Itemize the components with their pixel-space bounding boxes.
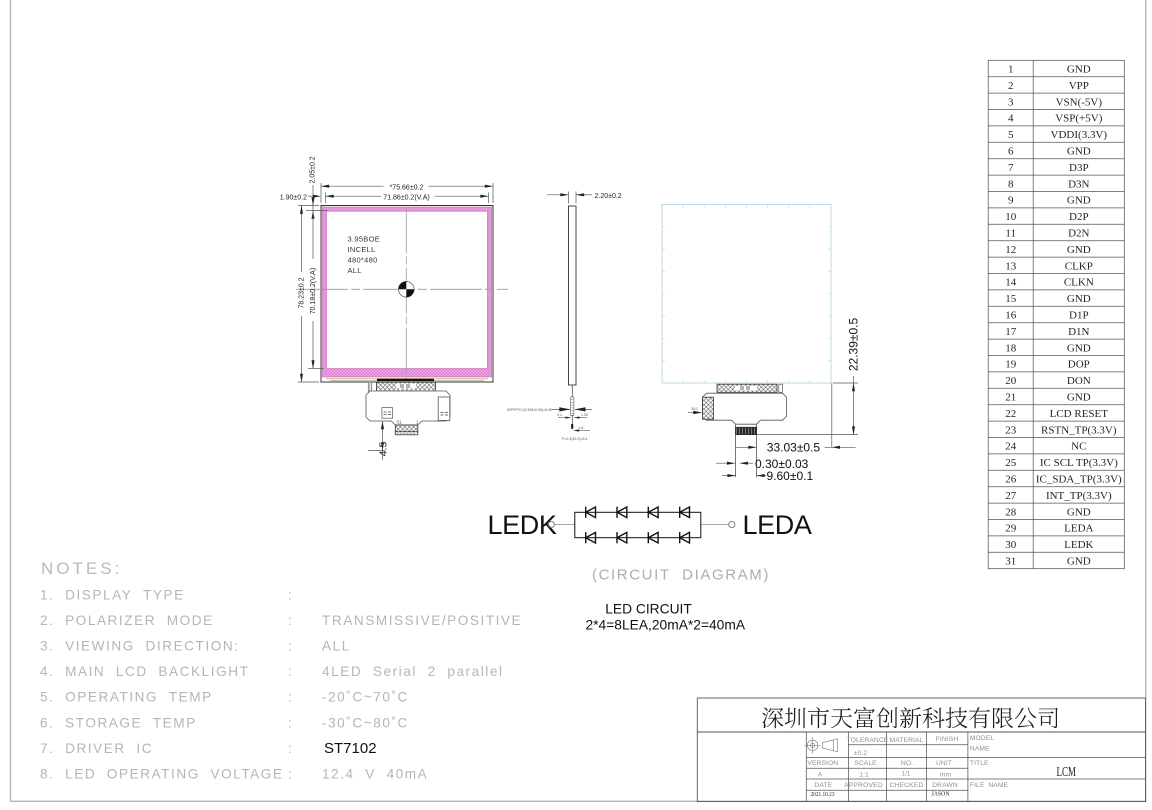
svg-text:1/1: 1/1: [902, 772, 911, 778]
svg-text:D3P: D3P: [1069, 162, 1089, 174]
svg-text:25: 25: [1005, 457, 1017, 469]
svg-text:TRANSMISSIVE/POSITIVE: TRANSMISSIVE/POSITIVE: [322, 613, 522, 628]
svg-text:CLKP: CLKP: [1065, 260, 1093, 272]
svg-text:4.5: 4.5: [378, 442, 390, 457]
svg-text::: :: [288, 613, 293, 628]
svg-text:JASON: JASON: [931, 792, 950, 798]
svg-text:29: 29: [1005, 523, 1017, 535]
svg-text:9.60±0.1: 9.60±0.1: [767, 469, 814, 483]
svg-text:9: 9: [1008, 195, 1014, 207]
svg-text:IC_SDA_TP(3.3V): IC_SDA_TP(3.3V): [1036, 474, 1122, 486]
svg-text:5: 5: [1008, 129, 1014, 141]
svg-text:2.05±0.2: 2.05±0.2: [310, 156, 317, 183]
svg-text:18: 18: [1005, 342, 1017, 354]
svg-text:GND: GND: [1067, 64, 1091, 76]
svg-text:D3N: D3N: [1068, 178, 1089, 190]
svg-text:20: 20: [1005, 375, 1017, 387]
svg-text:2: 2: [1008, 80, 1014, 92]
svg-text:3.95BOE: 3.95BOE: [348, 235, 381, 244]
svg-text:1: 1: [1008, 64, 1014, 76]
svg-text:30:1: 30:1: [691, 407, 698, 411]
svg-text:CLKN: CLKN: [1064, 277, 1094, 289]
svg-text:4LED Serial 2 parallel: 4LED Serial 2 parallel: [322, 664, 504, 679]
svg-text:14: 14: [1005, 277, 1017, 289]
svg-text::: :: [288, 741, 293, 756]
svg-text:NAME: NAME: [970, 746, 990, 753]
svg-text:12.4 V 40mA: 12.4 V 40mA: [322, 767, 428, 782]
svg-text:70.18±0.2(V.A): 70.18±0.2(V.A): [310, 268, 317, 314]
svg-text:FILE NAME: FILE NAME: [970, 782, 1009, 789]
svg-text::: :: [288, 664, 293, 679]
svg-text:GND: GND: [1067, 293, 1091, 305]
svg-text:19: 19: [1005, 359, 1017, 371]
svg-text:IC SCL TP(3.3V): IC SCL TP(3.3V): [1040, 457, 1118, 469]
svg-text::: :: [288, 587, 293, 602]
svg-text:15: 15: [1005, 293, 1017, 305]
svg-text:GND: GND: [1067, 392, 1091, 404]
svg-text:78.23±0.2: 78.23±0.2: [298, 277, 305, 308]
svg-text:2. POLARIZER MODE: 2. POLARIZER MODE: [40, 613, 214, 628]
svg-text:VERSION: VERSION: [807, 760, 838, 767]
svg-text:4. MAIN LCD BACKLIGHT: 4. MAIN LCD BACKLIGHT: [40, 664, 249, 679]
svg-text::: :: [288, 639, 293, 654]
svg-text:LEDA: LEDA: [743, 510, 812, 540]
svg-text:LEDK: LEDK: [1064, 539, 1093, 551]
svg-text:12: 12: [1005, 244, 1016, 256]
svg-text:VSP(+5V): VSP(+5V): [1055, 113, 1102, 125]
svg-text:NO.: NO.: [901, 760, 913, 767]
svg-text:0.1: 0.1: [557, 413, 562, 417]
svg-text:17: 17: [1005, 326, 1017, 338]
svg-text:DRAWN: DRAWN: [932, 782, 958, 789]
svg-text:-30˚C~80˚C: -30˚C~80˚C: [322, 715, 409, 730]
svg-text:RSTN_TP(3.3V): RSTN_TP(3.3V): [1041, 424, 1117, 436]
svg-text:23: 23: [1005, 424, 1017, 436]
svg-text:GND: GND: [1067, 506, 1091, 518]
svg-text:26: 26: [1005, 474, 1017, 486]
svg-text:P=0.3(30-2)=8.4: P=0.3(30-2)=8.4: [562, 437, 588, 441]
svg-text:VSN(-5V): VSN(-5V): [1056, 96, 1103, 108]
svg-text:30: 30: [1005, 539, 1017, 551]
svg-text:FINISH: FINISH: [936, 736, 959, 743]
svg-text:VPP: VPP: [1069, 80, 1089, 92]
svg-text:DON: DON: [1067, 375, 1091, 387]
svg-text:INCELL: INCELL: [348, 245, 376, 254]
svg-text:GND: GND: [1067, 146, 1091, 158]
svg-text:MODEL: MODEL: [970, 735, 994, 742]
svg-text:27: 27: [1005, 490, 1017, 502]
svg-text:1.05: 1.05: [581, 413, 588, 417]
svg-text:LED CIRCUIT: LED CIRCUIT: [605, 602, 692, 617]
svg-text:6. STORAGE TEMP: 6. STORAGE TEMP: [40, 715, 197, 730]
svg-text:10: 10: [1005, 211, 1017, 223]
svg-text:GND: GND: [1067, 556, 1091, 568]
svg-text:11: 11: [1005, 228, 1016, 240]
svg-text:31: 31: [397, 420, 402, 425]
svg-text:ST7102: ST7102: [324, 740, 377, 757]
svg-text::: :: [288, 767, 293, 782]
svg-text:D2P: D2P: [1069, 211, 1089, 223]
svg-text:1:1: 1:1: [859, 772, 869, 779]
svg-text:mm: mm: [940, 772, 952, 779]
svg-text:2*4=8LEA,20mA*2=40mA: 2*4=8LEA,20mA*2=40mA: [586, 618, 746, 633]
svg-text:480*480: 480*480: [348, 256, 378, 265]
svg-text:D1P: D1P: [1069, 310, 1089, 322]
svg-text:MATERIAL: MATERIAL: [890, 737, 924, 744]
svg-text:2021.10.23: 2021.10.23: [811, 792, 835, 798]
svg-text:GND: GND: [1067, 244, 1091, 256]
svg-text:TOLERANCE: TOLERANCE: [847, 737, 889, 744]
svg-text:7. DRIVER IC: 7. DRIVER IC: [40, 741, 153, 756]
svg-text:-20˚C~70˚C: -20˚C~70˚C: [322, 690, 409, 705]
svg-text:16: 16: [1005, 310, 1017, 322]
svg-text:5. OPERATING TEMP: 5. OPERATING TEMP: [40, 690, 213, 705]
svg-text:NC: NC: [1071, 441, 1086, 453]
svg-text:28: 28: [1005, 506, 1017, 518]
svg-text:CHECKED: CHECKED: [889, 782, 923, 789]
svg-text:13: 13: [1005, 260, 1017, 272]
svg-text:A: A: [818, 772, 823, 779]
svg-text:D2N: D2N: [1068, 228, 1089, 240]
svg-text::: :: [288, 690, 293, 705]
svg-text:31: 31: [1005, 556, 1016, 568]
svg-text:*75.66±0.2: *75.66±0.2: [390, 185, 424, 192]
svg-text:DATE: DATE: [814, 782, 832, 789]
svg-text::: :: [288, 715, 293, 730]
svg-text:33.03±0.5: 33.03±0.5: [767, 441, 821, 455]
svg-text:ALL: ALL: [348, 266, 362, 275]
svg-text:(CIRCUIT DIAGRAM): (CIRCUIT DIAGRAM): [592, 567, 770, 584]
svg-text:8: 8: [1008, 178, 1014, 190]
svg-text:SCALE: SCALE: [854, 760, 877, 767]
svg-text:TITLE: TITLE: [970, 760, 989, 767]
svg-text:2.20±0.2: 2.20±0.2: [595, 193, 622, 200]
svg-text:GND: GND: [1067, 195, 1091, 207]
svg-text:1. DISPLAY TYPE: 1. DISPLAY TYPE: [40, 587, 185, 602]
svg-text:22.39±0.5: 22.39±0.5: [847, 318, 861, 372]
svg-text:UNIT: UNIT: [936, 760, 952, 767]
svg-text:21: 21: [1005, 392, 1016, 404]
svg-text:DOP: DOP: [1068, 359, 1090, 371]
svg-text:VDDI(3.3V): VDDI(3.3V): [1051, 129, 1108, 141]
svg-text:0.5: 0.5: [579, 426, 584, 430]
svg-text:GND: GND: [1067, 342, 1091, 354]
svg-text:3. VIEWING DIRECTION:: 3. VIEWING DIRECTION:: [40, 639, 240, 654]
svg-text:71.86±0.2(V.A): 71.86±0.2(V.A): [383, 195, 429, 202]
svg-text:LEDK: LEDK: [488, 510, 557, 540]
svg-text:7: 7: [1008, 162, 1014, 174]
svg-text:24: 24: [1005, 441, 1017, 453]
svg-text:D1N: D1N: [1068, 326, 1089, 338]
svg-text:30P*FPC+(0.325±0.05)=8.45: 30P*FPC+(0.325±0.05)=8.45: [507, 408, 552, 412]
svg-text:8. LED OPERATING VOLTAGE: 8. LED OPERATING VOLTAGE: [40, 767, 284, 782]
svg-text:3: 3: [1008, 96, 1014, 108]
svg-text:APPROVED: APPROVED: [844, 782, 883, 789]
svg-text:1.90±0.2: 1.90±0.2: [280, 195, 307, 202]
svg-text:LEDA: LEDA: [1064, 523, 1093, 535]
svg-text:NOTES:: NOTES:: [41, 559, 122, 578]
svg-text:LCM: LCM: [1057, 765, 1077, 780]
svg-text:INT_TP(3.3V): INT_TP(3.3V): [1046, 490, 1112, 502]
svg-text:±0.2: ±0.2: [854, 750, 868, 757]
svg-text:4: 4: [1008, 113, 1014, 125]
svg-text:22: 22: [1005, 408, 1016, 420]
svg-text:LCD RESET: LCD RESET: [1050, 408, 1109, 420]
svg-text:ALL: ALL: [322, 639, 351, 654]
svg-text:6: 6: [1008, 146, 1014, 158]
